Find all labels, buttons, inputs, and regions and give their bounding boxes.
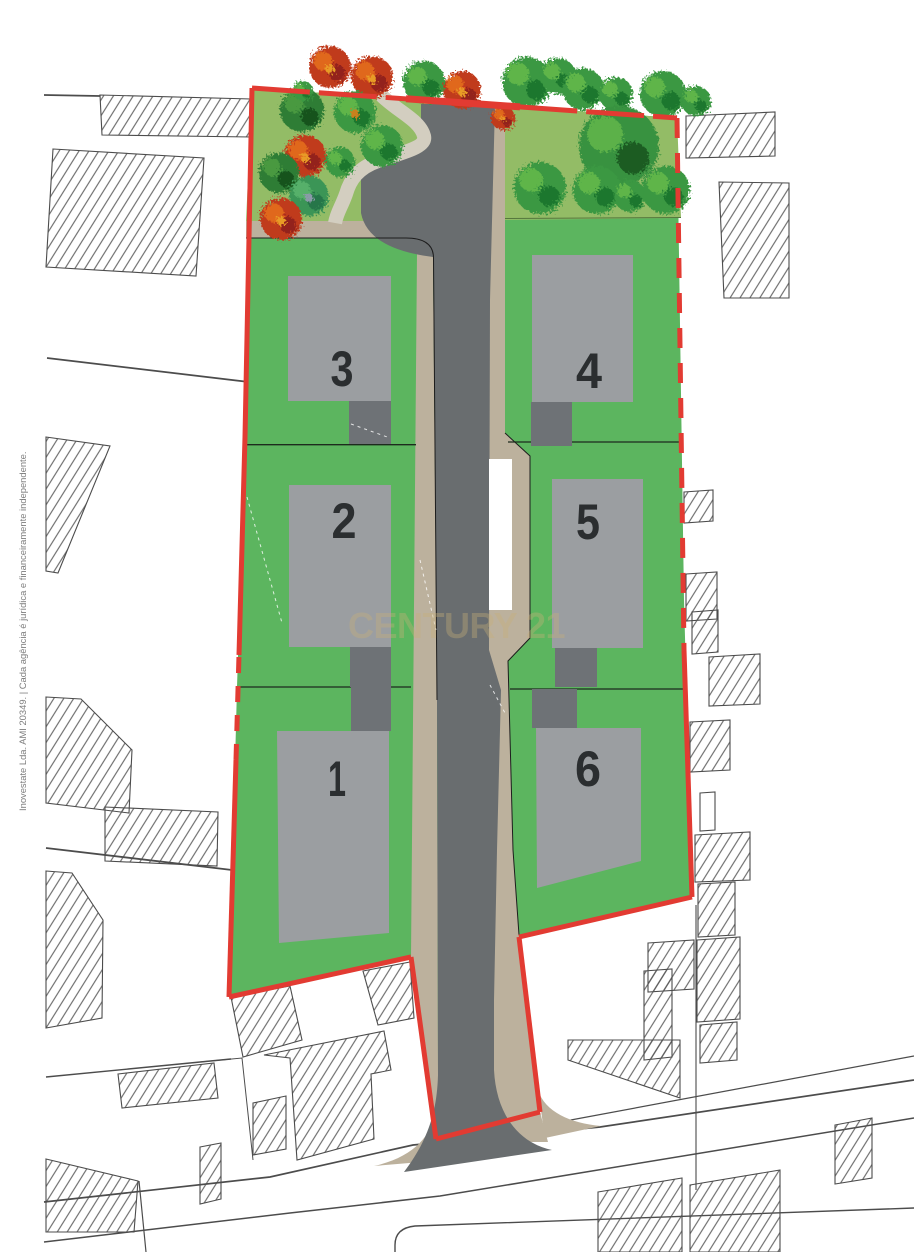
svg-text:3: 3 <box>331 341 354 397</box>
svg-text:6: 6 <box>575 741 601 797</box>
svg-text:1: 1 <box>328 751 346 807</box>
svg-text:CENTURY 21: CENTURY 21 <box>348 605 566 646</box>
svg-text:5: 5 <box>576 494 600 550</box>
svg-text:4: 4 <box>576 343 602 399</box>
svg-text:Inovestate Lda. AMI 20349. | C: Inovestate Lda. AMI 20349. | Cada agênci… <box>17 452 28 811</box>
svg-text:2: 2 <box>332 493 357 549</box>
